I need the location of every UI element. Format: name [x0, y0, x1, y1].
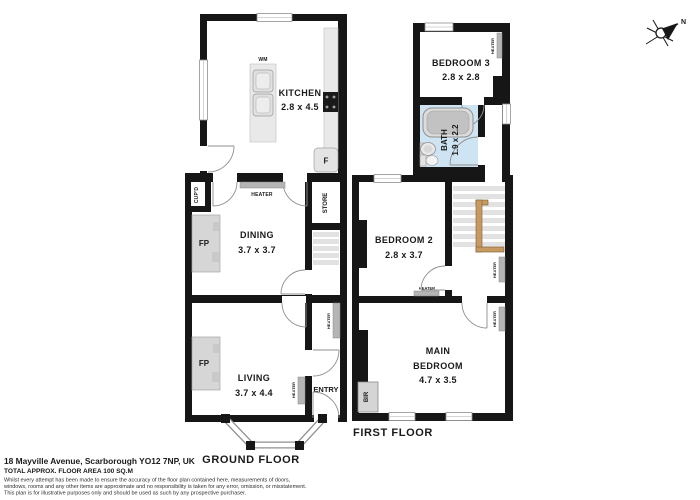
heater-living	[298, 377, 305, 404]
bir-label: BIR	[364, 391, 370, 402]
bedroom3-label: BEDROOM 3	[432, 58, 490, 68]
heater-hall	[333, 303, 340, 338]
heater-bedroom2	[414, 291, 439, 296]
chimney-main	[352, 330, 368, 382]
kitchen-top-window	[257, 14, 292, 22]
disclaimer-line-1: Whilst every attempt has been made to en…	[4, 478, 291, 484]
bath-label: BATH	[440, 129, 449, 151]
washing-machine	[250, 64, 276, 142]
heater-hall-label: HEATER	[326, 313, 331, 329]
fp-living-label: FP	[199, 359, 210, 368]
heater-stairs	[499, 257, 505, 282]
main-bedroom-room	[359, 303, 505, 413]
floor-plan-page: WM F KITCHEN 2.8 x 4.5 CUP'D	[0, 0, 700, 500]
first-floor-plan: HEATER BEDROOM 3 2.8 x 2.8	[352, 23, 513, 439]
heater-main-bedroom	[499, 307, 505, 331]
main-bedroom-label-1: MAIN	[426, 346, 451, 356]
heater-stairs-label: HEATER	[492, 262, 497, 278]
kitchen-label: KITCHEN	[279, 88, 322, 98]
living-dims: 3.7 x 4.4	[235, 388, 273, 398]
ground-floor-label: GROUND FLOOR	[202, 454, 300, 466]
bedroom2-window	[374, 175, 401, 183]
disclaimer-line-2: windows, rooms and any other items are a…	[3, 484, 307, 490]
landing-window	[503, 104, 511, 124]
hob	[323, 92, 338, 112]
bedroom2-dims: 2.8 x 3.7	[385, 250, 423, 260]
main-bedroom-window-left	[389, 413, 415, 421]
main-bedroom-dims: 4.7 x 3.5	[419, 375, 457, 385]
fridge-label: F	[324, 157, 329, 166]
living-label: LIVING	[238, 373, 270, 383]
bedroom3-dims: 2.8 x 2.8	[442, 72, 480, 82]
heater-living-label: HEATER	[291, 382, 296, 398]
disclaimer-line-3: This plan is for illustrative purposes o…	[4, 491, 247, 497]
landing	[485, 105, 502, 190]
bedroom3-window	[425, 23, 453, 31]
compass-north-label: N	[681, 19, 686, 26]
heater-dining-label: HEATER	[251, 192, 273, 198]
kitchen-counter	[324, 28, 338, 150]
first-floor-label: FIRST FLOOR	[353, 427, 433, 439]
floor-area-line: TOTAL APPROX. FLOOR AREA 100 SQ.M	[4, 468, 133, 475]
bath-sink	[420, 143, 436, 157]
store-label: STORE	[323, 193, 329, 214]
heater-bedroom3-label: HEATER	[490, 38, 495, 54]
chimney-bedroom3	[493, 76, 510, 97]
heater-bedroom3	[497, 33, 502, 58]
bedroom2-label: BEDROOM 2	[375, 235, 433, 245]
stairs-ground	[313, 232, 339, 265]
kitchen-dims: 2.8 x 4.5	[281, 102, 319, 112]
compass-rose: N	[646, 19, 686, 46]
ground-floor-plan: WM F KITCHEN 2.8 x 4.5 CUP'D	[185, 14, 347, 467]
bath-dims: 1.9 x 2.2	[451, 124, 460, 156]
toilet	[420, 155, 438, 166]
heater-dining	[240, 182, 285, 188]
dining-dims: 3.7 x 3.7	[238, 245, 276, 255]
dining-label: DINING	[240, 230, 274, 240]
floor-plan-svg: WM F KITCHEN 2.8 x 4.5 CUP'D	[0, 0, 700, 500]
chimney-bedroom2	[352, 220, 367, 268]
cupboard-label: CUP'D	[194, 187, 200, 204]
main-bedroom-window-right	[446, 413, 472, 421]
address-line: 18 Mayville Avenue, Scarborough YO12 7NP…	[4, 456, 195, 466]
kitchen-left-window	[200, 60, 208, 120]
wm-label: WM	[258, 57, 267, 63]
fp-dining-label: FP	[199, 239, 210, 248]
heater-main-label: HEATER	[492, 311, 497, 327]
main-bedroom-label-2: BEDROOM	[413, 361, 463, 371]
